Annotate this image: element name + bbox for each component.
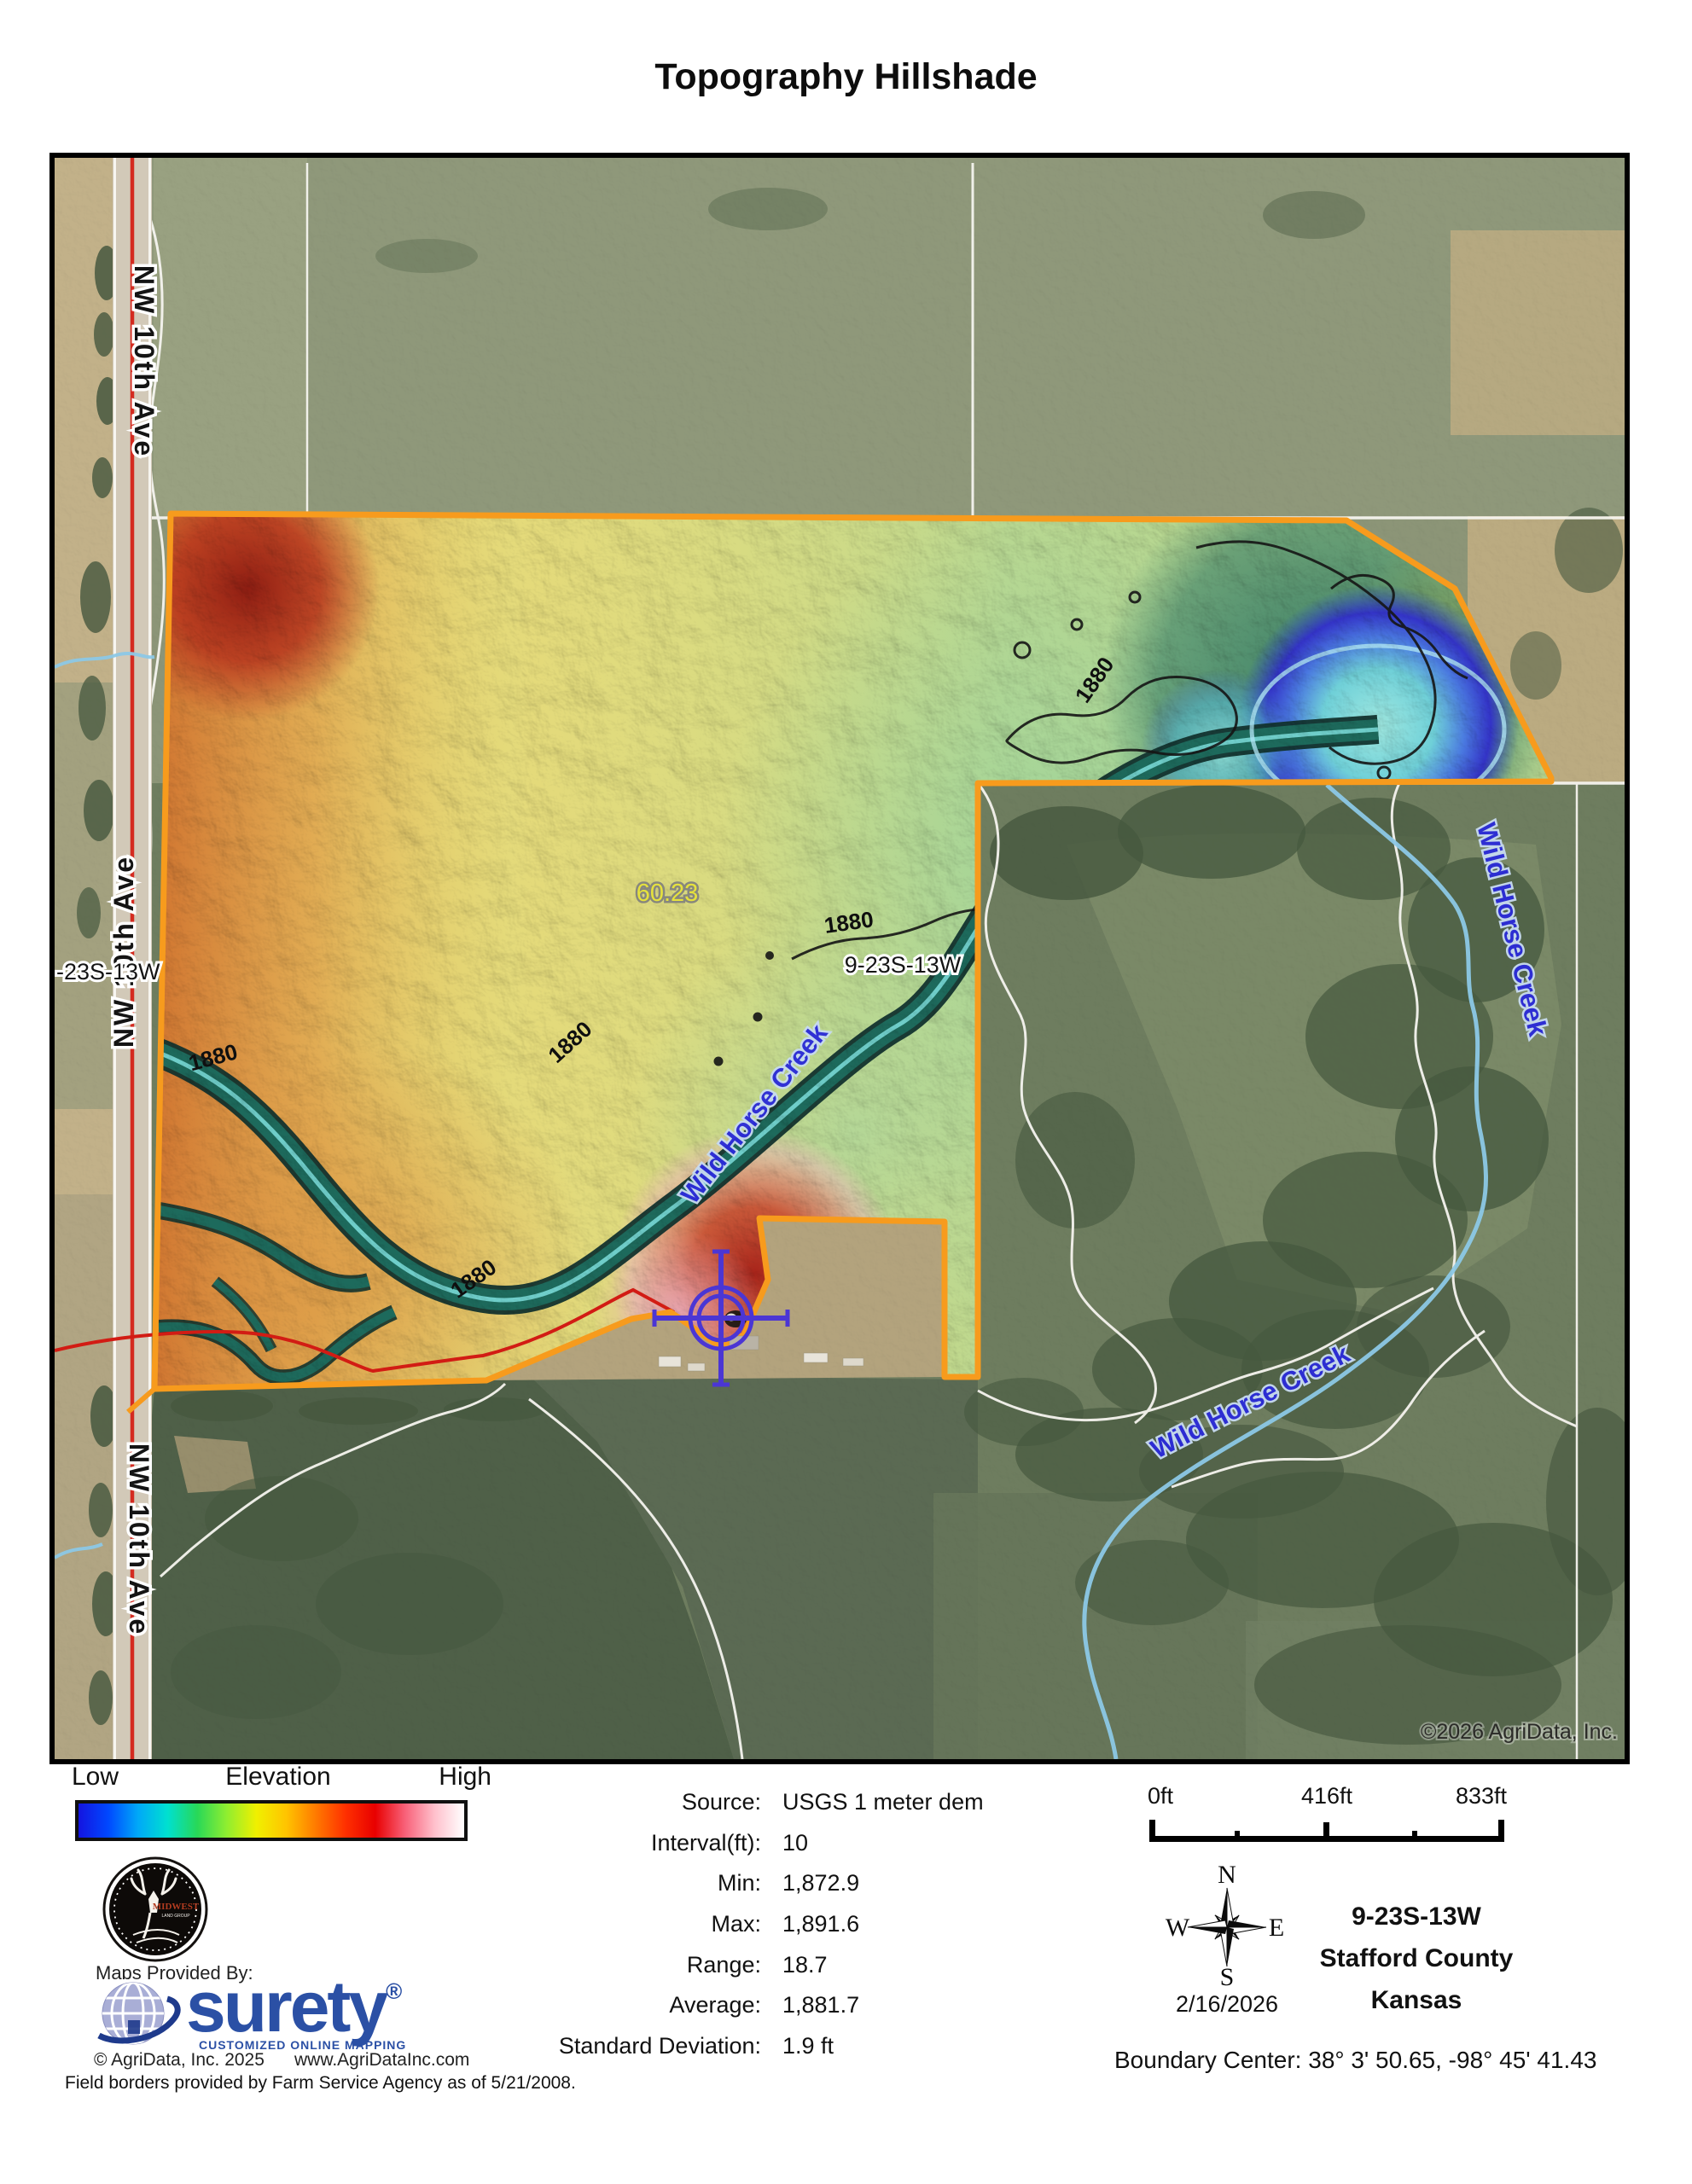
midwest-land-group-badge-icon: MIDWEST LAND GROUP	[101, 1856, 210, 1966]
compass-rose-icon: N E S W	[1163, 1865, 1291, 1989]
badge-subtitle: LAND GROUP	[161, 1914, 190, 1919]
section-label-left: -23S-13W	[56, 959, 160, 985]
legend-title: Elevation	[193, 1763, 363, 1792]
scale-bar	[1149, 1815, 1504, 1843]
stat-value: USGS 1 meter dem	[782, 1789, 984, 1815]
map-date: 2/16/2026	[1160, 1991, 1294, 2018]
acreage-label: 60.23	[637, 880, 699, 907]
stat-row: Average:1,881.7	[468, 1985, 984, 2026]
location-block: 9-23S-13W Stafford County Kansas	[1304, 1896, 1529, 2021]
stat-label: Interval(ft):	[468, 1830, 761, 1856]
stat-label: Source:	[468, 1789, 761, 1815]
scale-end-label: 833ft	[1418, 1783, 1507, 1809]
stat-label: Max:	[468, 1911, 761, 1937]
surety-globe-icon	[96, 1979, 181, 2049]
stat-label: Standard Deviation:	[468, 2033, 761, 2059]
boundary-center: Boundary Center: 38° 3' 50.65, -98° 45' …	[1114, 2047, 1626, 2074]
stat-row: Interval(ft):10	[468, 1823, 984, 1864]
stat-label: Min:	[468, 1870, 761, 1896]
section-label-center: 9-23S-13W	[845, 952, 962, 978]
stat-row: Standard Deviation:1.9 ft	[468, 2026, 984, 2067]
scale-start-label: 0ft	[1148, 1783, 1173, 1809]
stat-row: Min:1,872.9	[468, 1863, 984, 1904]
map-canvas: NW 10th Ave NW 10th Ave NW 10th Ave -23S…	[55, 158, 1625, 1759]
compass-east-label: E	[1269, 1914, 1284, 1942]
elevation-stats: Source:USGS 1 meter dem Interval(ft):10 …	[468, 1782, 984, 2066]
road-label-middle: NW 10th Ave	[108, 855, 139, 1048]
road-label-top: NW 10th Ave	[129, 265, 160, 458]
stat-value: 1,872.9	[782, 1870, 859, 1896]
stat-row: Max:1,891.6	[468, 1904, 984, 1945]
map-viewport: NW 10th Ave NW 10th Ave NW 10th Ave -23S…	[49, 153, 1630, 1764]
stat-label: Average:	[468, 1992, 761, 2018]
compass-south-label: S	[1220, 1963, 1235, 1989]
legend-low-label: Low	[72, 1763, 119, 1792]
legend-gradient	[75, 1800, 468, 1841]
page-title: Topography Hillshade	[0, 56, 1692, 98]
stat-value: 1.9 ft	[782, 2033, 834, 2059]
agridata-website: www.AgriDataInc.com	[294, 2050, 469, 2071]
agridata-copyright: © AgriData, Inc. 2025	[94, 2050, 265, 2071]
stat-label: Range:	[468, 1952, 761, 1978]
stat-row: Source:USGS 1 meter dem	[468, 1782, 984, 1823]
road-label-bottom: NW 10th Ave	[124, 1443, 154, 1636]
stat-value: 1,881.7	[782, 1992, 859, 2018]
field-borders-note: Field borders provided by Farm Service A…	[65, 2073, 576, 2094]
compass-north-label: N	[1218, 1865, 1236, 1889]
stat-value: 1,891.6	[782, 1911, 859, 1937]
badge-title: MIDWEST	[153, 1902, 200, 1912]
location-county: Stafford County	[1304, 1937, 1529, 1979]
compass-west-label: W	[1166, 1914, 1190, 1942]
surety-logo: surety®	[186, 1971, 402, 2042]
stat-value: 18.7	[782, 1952, 828, 1978]
map-copyright: ©2026 AgriData, Inc.	[1421, 1720, 1618, 1744]
stat-row: Range:18.7	[468, 1944, 984, 1985]
stat-value: 10	[782, 1830, 808, 1856]
location-section: 9-23S-13W	[1304, 1896, 1529, 1937]
registered-mark: ®	[386, 1978, 402, 2004]
location-state: Kansas	[1304, 1979, 1529, 2021]
surety-wordmark: surety	[186, 1966, 386, 2047]
scale-middle-label: 416ft	[1263, 1783, 1391, 1809]
